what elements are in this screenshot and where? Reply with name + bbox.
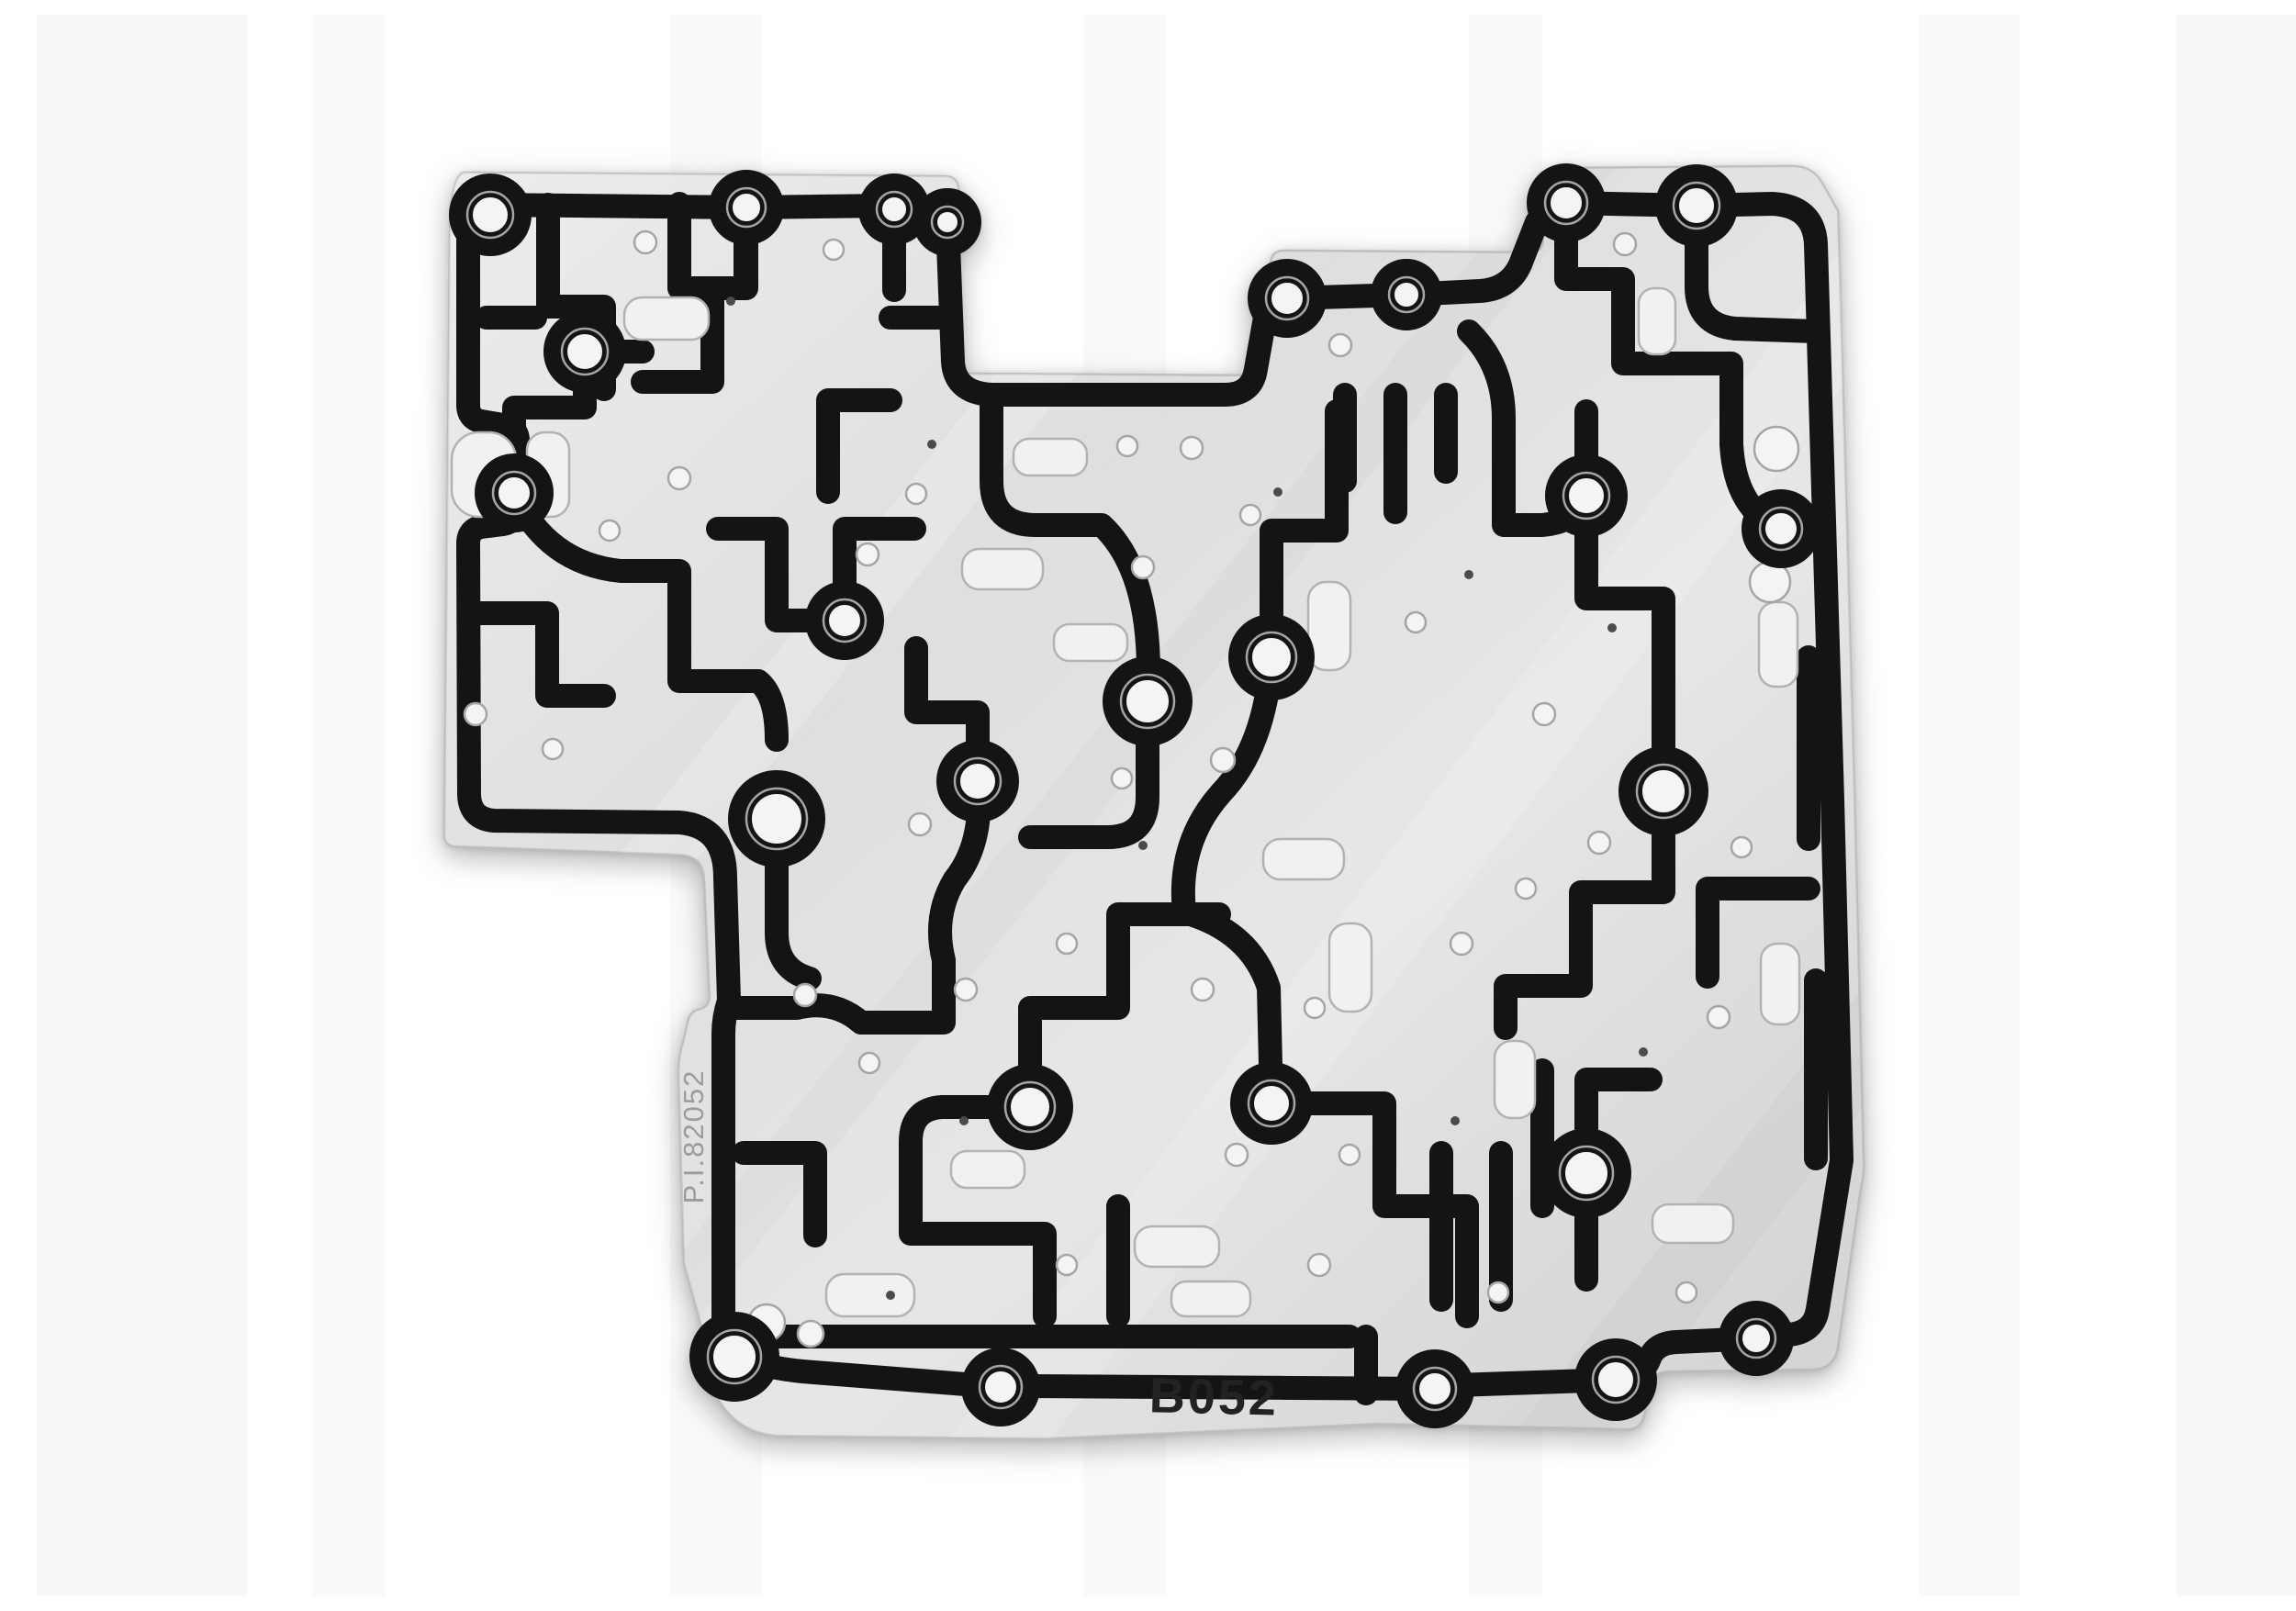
- pin-hole: [1273, 487, 1282, 497]
- small-hole: [794, 984, 816, 1006]
- product-photo: B052 P.I.82052: [37, 15, 2296, 1596]
- pin-hole: [1607, 623, 1617, 632]
- small-hole: [668, 467, 690, 489]
- small-hole: [1450, 933, 1473, 955]
- bolt-hole: [1407, 1361, 1462, 1416]
- bolt-hole: [555, 322, 614, 381]
- small-hole: [1181, 437, 1203, 459]
- small-hole: [1339, 1145, 1360, 1165]
- slot: [951, 1151, 1025, 1188]
- bolt-hole: [1586, 1350, 1645, 1409]
- side-label-text: P.I.82052: [678, 1069, 710, 1204]
- separator-plate-graphic: B052 P.I.82052: [37, 15, 2296, 1596]
- small-hole: [1614, 233, 1636, 255]
- part-number-text: B052: [1148, 1368, 1280, 1426]
- small-hole: [859, 1053, 879, 1073]
- bolt-hole: [1630, 758, 1697, 824]
- bolt-hole: [701, 1324, 767, 1390]
- small-hole: [1057, 1255, 1077, 1275]
- slot: [1171, 1281, 1250, 1316]
- pin-hole: [927, 440, 936, 449]
- small-hole: [465, 703, 487, 725]
- slot: [1652, 1204, 1733, 1243]
- pin-hole: [1464, 570, 1473, 579]
- slot: [1263, 839, 1344, 879]
- small-hole: [1533, 703, 1555, 725]
- pin-hole: [959, 1116, 969, 1125]
- bolt-hole: [1242, 1074, 1301, 1133]
- small-hole: [1305, 998, 1325, 1018]
- slot: [1759, 602, 1798, 687]
- small-hole: [543, 739, 563, 759]
- bolt-hole: [461, 185, 520, 244]
- slot: [1135, 1226, 1219, 1267]
- bolt-hole: [1753, 501, 1809, 556]
- small-hole: [857, 543, 879, 565]
- slot: [1014, 439, 1087, 475]
- small-hole: [1057, 934, 1077, 954]
- bolt-hole: [1260, 271, 1315, 326]
- small-hole: [1329, 334, 1351, 356]
- small-hole: [634, 231, 656, 253]
- bolt-hole: [1667, 176, 1726, 235]
- slot: [1054, 624, 1127, 661]
- small-hole: [1112, 768, 1132, 789]
- pin-hole: [886, 1291, 895, 1300]
- bolt-hole: [1730, 1313, 1782, 1364]
- slot: [1761, 944, 1799, 1024]
- bolt-hole: [999, 1076, 1061, 1138]
- small-hole: [1516, 878, 1536, 899]
- bolt-hole: [1553, 1140, 1619, 1206]
- small-hole: [1676, 1282, 1697, 1303]
- pin-hole: [1450, 1116, 1460, 1125]
- slot: [624, 297, 709, 340]
- bolt-hole: [1557, 466, 1616, 525]
- bolt-hole: [948, 752, 1007, 811]
- small-hole: [1731, 837, 1752, 857]
- bolt-hole: [487, 465, 542, 520]
- small-hole: [1308, 1254, 1330, 1276]
- small-hole: [1240, 505, 1260, 525]
- bolt-hole: [817, 593, 872, 648]
- small-hole: [1488, 1282, 1508, 1303]
- small-hole: [1588, 832, 1610, 854]
- slot: [826, 1274, 914, 1316]
- pin-hole: [1138, 841, 1148, 850]
- small-hole: [1132, 556, 1154, 578]
- bolt-hole: [1114, 668, 1181, 734]
- small-hole: [1117, 436, 1137, 456]
- small-hole: [1708, 1006, 1730, 1028]
- small-hole: [1226, 1144, 1248, 1166]
- slot: [1329, 923, 1372, 1012]
- small-hole: [1406, 612, 1426, 632]
- pin-hole: [1639, 1047, 1648, 1057]
- bolt-hole: [721, 182, 772, 233]
- bolt-hole: [973, 1359, 1028, 1415]
- small-hole: [599, 520, 620, 541]
- small-hole: [906, 484, 926, 504]
- small-hole: [823, 240, 844, 260]
- slot: [1495, 1041, 1535, 1118]
- small-hole: [1754, 427, 1798, 471]
- pin-hole: [726, 296, 735, 306]
- bolt-hole: [1240, 626, 1303, 688]
- slot: [962, 549, 1043, 589]
- small-hole: [909, 813, 931, 835]
- slot: [1639, 288, 1675, 354]
- bolt-hole: [1539, 175, 1594, 230]
- small-hole: [1192, 979, 1214, 1001]
- small-hole: [1211, 748, 1235, 772]
- small-hole: [955, 979, 977, 1001]
- bolt-hole: [740, 782, 813, 856]
- small-hole: [798, 1321, 823, 1347]
